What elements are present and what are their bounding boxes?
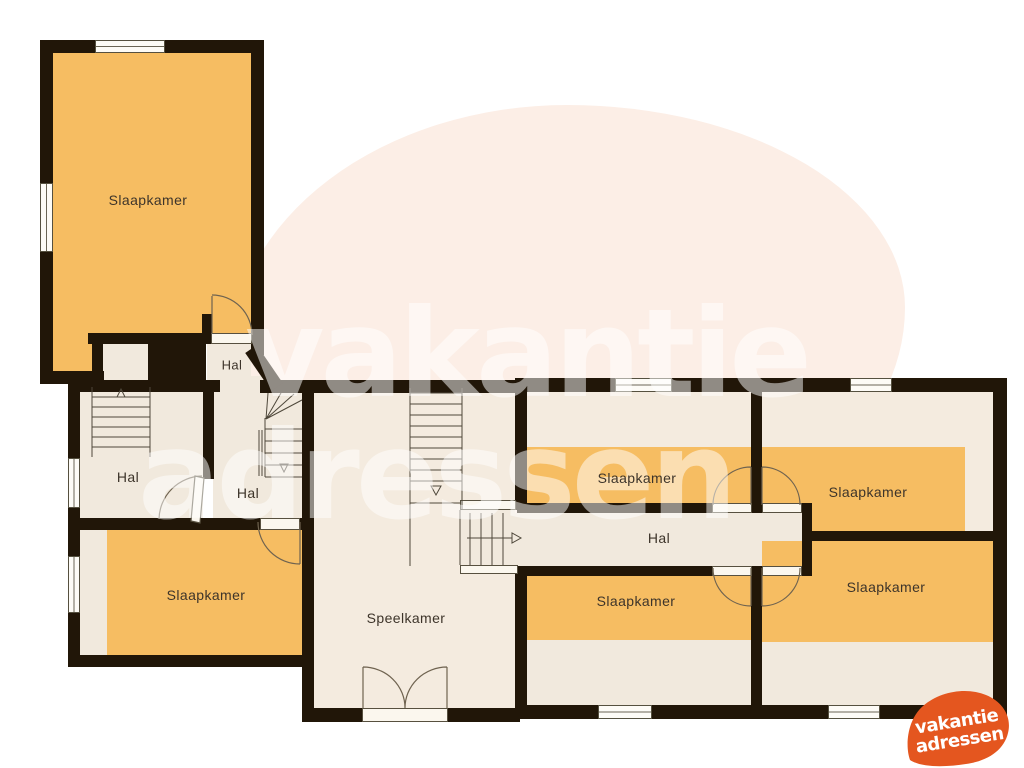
label-hall-corridor: Hal — [648, 530, 670, 546]
label-hall-top: Hal — [222, 358, 243, 373]
staircase-main — [410, 388, 462, 566]
staircase-center — [259, 393, 302, 477]
stair-arrow-right — [512, 533, 521, 543]
vakantieadressen-logo: vakantie adressen — [902, 686, 1014, 768]
label-hall-center: Hal — [237, 485, 259, 501]
door-arc — [212, 295, 252, 335]
floorplan-canvas: Slaapkamer Hal Hal Hal Slaapkamer Speelk… — [0, 0, 1024, 768]
label-bedroom-top-middle: Slaapkamer — [598, 470, 677, 486]
label-bedroom-bottom-middle: Slaapkamer — [597, 593, 676, 609]
door-leaf — [191, 476, 204, 523]
door-arc — [713, 467, 751, 505]
stair-arrow-up — [117, 389, 125, 397]
double-door-arc — [363, 667, 447, 708]
door-arc — [258, 522, 300, 564]
plan-linework — [0, 0, 1024, 768]
label-bedroom-bottom-right: Slaapkamer — [847, 579, 926, 595]
stair-arrow-down — [431, 486, 441, 495]
staircase-left — [92, 387, 150, 457]
label-playroom: Speelkamer — [367, 610, 446, 626]
door-arc — [713, 568, 751, 606]
label-bedroom-top-right: Slaapkamer — [829, 484, 908, 500]
door-arc — [762, 568, 800, 606]
label-hall-left: Hal — [117, 469, 139, 485]
door-arc — [762, 467, 800, 505]
wall-diagonal — [251, 349, 277, 387]
staircase-side — [460, 510, 521, 565]
label-bedroom-bottom-left: Slaapkamer — [167, 587, 246, 603]
label-bedroom-top-left: Slaapkamer — [109, 192, 188, 208]
